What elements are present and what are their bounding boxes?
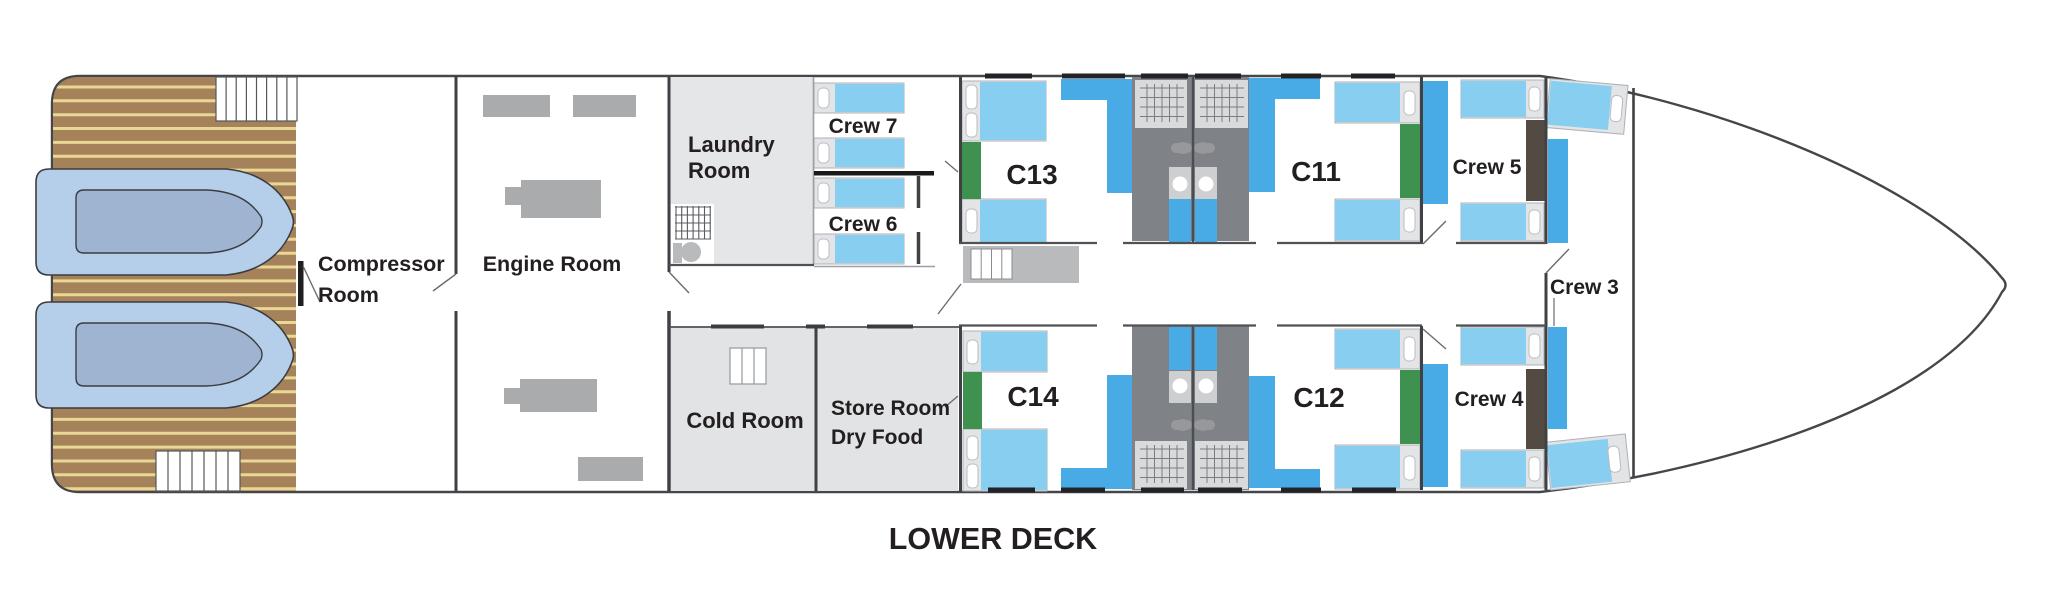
svg-text:Compressor: Compressor: [318, 252, 445, 276]
svg-text:Dry Food: Dry Food: [831, 426, 923, 449]
svg-text:C14: C14: [1007, 381, 1059, 412]
svg-text:Store Room: Store Room: [831, 397, 950, 420]
svg-text:C13: C13: [1006, 159, 1057, 190]
svg-text:Crew 7: Crew 7: [829, 115, 898, 138]
svg-text:Engine Room: Engine Room: [483, 252, 622, 276]
svg-text:LOWER DECK: LOWER DECK: [889, 522, 1097, 556]
svg-text:Crew 3: Crew 3: [1550, 276, 1619, 299]
svg-text:Crew 5: Crew 5: [1453, 156, 1522, 179]
svg-text:Crew 4: Crew 4: [1455, 388, 1524, 411]
svg-text:Cold Room: Cold Room: [686, 408, 803, 433]
svg-text:Room: Room: [318, 283, 379, 307]
svg-text:Room: Room: [688, 158, 750, 183]
svg-text:Crew 6: Crew 6: [829, 213, 898, 236]
svg-text:C11: C11: [1291, 156, 1341, 187]
svg-text:Laundry: Laundry: [688, 132, 776, 157]
svg-text:C12: C12: [1293, 382, 1344, 413]
